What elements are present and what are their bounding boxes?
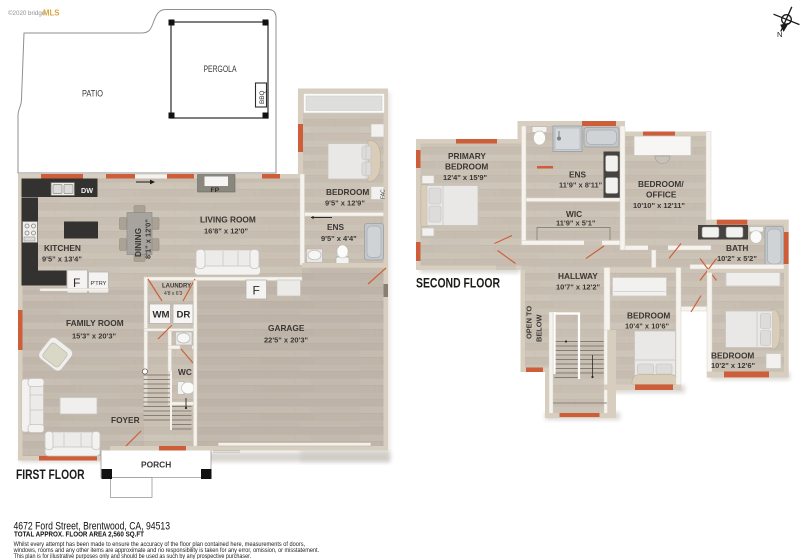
svg-text:DINING: DINING: [133, 228, 143, 257]
svg-text:10'7" x 12'2": 10'7" x 12'2": [556, 283, 600, 292]
svg-text:10'10" x 12'11": 10'10" x 12'11": [633, 201, 685, 210]
svg-text:22'5" x 20'3": 22'5" x 20'3": [264, 336, 308, 345]
svg-text:WC: WC: [178, 367, 192, 377]
svg-text:ENS: ENS: [327, 222, 345, 232]
svg-text:OFFICE: OFFICE: [646, 190, 677, 200]
svg-text:15'3" x 20'3": 15'3" x 20'3": [72, 332, 116, 341]
svg-text:11'9" x 8'11": 11'9" x 8'11": [559, 181, 603, 190]
svg-text:10'4" x 10'6": 10'4" x 10'6": [625, 322, 669, 331]
svg-text:FP: FP: [211, 187, 220, 194]
svg-text:PATIO: PATIO: [82, 89, 103, 99]
svg-text:11'9" x 5'1": 11'9" x 5'1": [556, 219, 596, 228]
svg-text:WIC: WIC: [566, 209, 582, 219]
svg-text:PORCH: PORCH: [141, 460, 171, 470]
svg-text:BEDROOM: BEDROOM: [627, 311, 670, 321]
svg-text:F: F: [73, 276, 80, 290]
svg-text:TOTAL APPROX. FLOOR AREA 2,56: TOTAL APPROX. FLOOR AREA 2,560 SQ.FT: [14, 530, 145, 539]
svg-text:9'5" x 4'4": 9'5" x 4'4": [321, 234, 357, 243]
svg-text:PRIMARY: PRIMARY: [448, 151, 486, 161]
svg-text:10'2" x 5'2": 10'2" x 5'2": [717, 254, 757, 263]
svg-text:F: F: [253, 284, 260, 298]
svg-text:9'5" x 12'9": 9'5" x 12'9": [325, 199, 365, 208]
svg-text:N: N: [777, 30, 782, 39]
svg-text:DR: DR: [177, 310, 191, 321]
svg-text:FAC: FAC: [381, 189, 387, 199]
svg-text:©2020 bridge: ©2020 bridge: [8, 10, 46, 17]
svg-text:BEDROOM: BEDROOM: [326, 187, 369, 197]
svg-text:FOYER: FOYER: [111, 415, 140, 425]
svg-text:LAUNDRY: LAUNDRY: [162, 284, 191, 290]
svg-text:FIRST FLOOR: FIRST FLOOR: [16, 467, 85, 482]
svg-text:BEDROOM: BEDROOM: [445, 162, 488, 172]
svg-text:SECOND FLOOR: SECOND FLOOR: [416, 276, 500, 291]
svg-text:BEDROOM: BEDROOM: [711, 351, 754, 361]
svg-text:9'5" x 13'4": 9'5" x 13'4": [42, 255, 82, 264]
svg-text:4'8 x 6'3: 4'8 x 6'3: [164, 291, 183, 297]
svg-text:MLS: MLS: [43, 9, 59, 18]
svg-text:LIVING ROOM: LIVING ROOM: [200, 215, 256, 225]
svg-text:DW: DW: [81, 186, 93, 195]
svg-text:PERGOLA: PERGOLA: [204, 64, 237, 74]
svg-text:10'2" x 12'6": 10'2" x 12'6": [711, 361, 755, 370]
svg-text:WM: WM: [153, 310, 170, 321]
svg-text:16'8" x 12'0": 16'8" x 12'0": [204, 227, 248, 236]
svg-text:KITCHEN: KITCHEN: [44, 243, 81, 253]
svg-text:12'4" x 15'9": 12'4" x 15'9": [443, 173, 487, 182]
svg-text:FAMILY ROOM: FAMILY ROOM: [66, 318, 124, 328]
svg-text:BELOW: BELOW: [535, 314, 544, 342]
svg-text:BATH: BATH: [726, 243, 748, 253]
svg-text:BBQ: BBQ: [259, 90, 266, 104]
svg-text:ENS: ENS: [569, 170, 587, 180]
svg-text:This plan is for illustrative: This plan is for illustrative purposes o…: [14, 553, 252, 559]
svg-text:GARAGE: GARAGE: [268, 323, 305, 333]
svg-text:8'1" x 12'0": 8'1" x 12'0": [144, 219, 153, 259]
svg-text:OPEN TO: OPEN TO: [525, 306, 534, 339]
svg-text:BEDROOM/: BEDROOM/: [638, 179, 684, 189]
svg-text:HALLWAY: HALLWAY: [558, 271, 598, 281]
svg-text:P'TRY: P'TRY: [91, 281, 107, 287]
